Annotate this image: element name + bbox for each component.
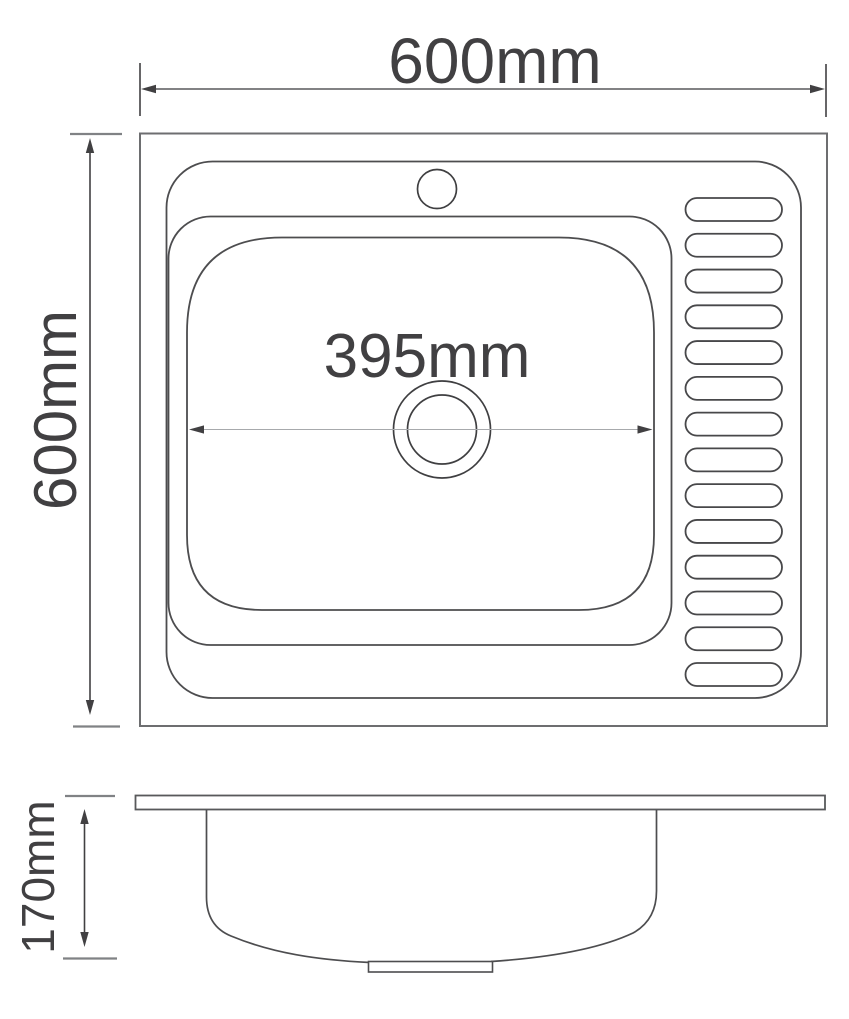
drainboard-slot [686, 663, 783, 686]
drainboard-slot [686, 234, 783, 257]
bowl-width-dimension: 395mm [189, 322, 653, 434]
bowl-depth-label: 170mm [12, 800, 64, 953]
drawing-svg: 600mm 600mm [0, 0, 849, 1019]
drain-stub [369, 962, 493, 973]
arrowhead-up-icon [80, 809, 88, 824]
left-depth-dimension: 600mm [22, 134, 122, 727]
drainboard-slot [686, 627, 783, 650]
arrowhead-down-icon [86, 700, 94, 715]
bowl-profile-right [491, 810, 657, 962]
overall-depth-label: 600mm [22, 310, 89, 510]
drainboard-slot [686, 448, 783, 471]
sink-technical-drawing: 600mm 600mm [0, 0, 849, 1019]
bowl-width-label: 395mm [324, 322, 531, 391]
drainboard-slot [686, 198, 783, 221]
drainboard-slot [686, 305, 783, 328]
bowl-rim [169, 217, 672, 646]
overall-width-label: 600mm [388, 25, 601, 97]
deck-bar [136, 796, 826, 810]
bowl-profile-left [207, 810, 371, 963]
drainboard-slot [686, 341, 783, 364]
drainboard-slot [686, 413, 783, 436]
arrowhead-right-icon [638, 425, 653, 433]
arrowhead-left-icon [141, 85, 156, 93]
arrowhead-down-icon [80, 932, 88, 947]
drainboard-slot [686, 270, 783, 293]
arrowhead-up-icon [86, 138, 94, 153]
drainboard-slot [686, 484, 783, 507]
arrowhead-left-icon [189, 425, 204, 433]
drainboard-slot [686, 556, 783, 579]
drainboard-slot [686, 591, 783, 614]
drainboard-slots [686, 198, 783, 686]
drainboard-slot [686, 520, 783, 543]
faucet-hole [418, 170, 457, 209]
top-width-dimension: 600mm [140, 25, 826, 117]
drainboard-slot [686, 377, 783, 400]
sink-top-view: 395mm [140, 134, 827, 727]
sink-side-view: 170mm [12, 796, 825, 973]
bowl [187, 238, 654, 611]
arrowhead-right-icon [810, 85, 825, 93]
bowl-depth-dimension: 170mm [12, 796, 117, 959]
